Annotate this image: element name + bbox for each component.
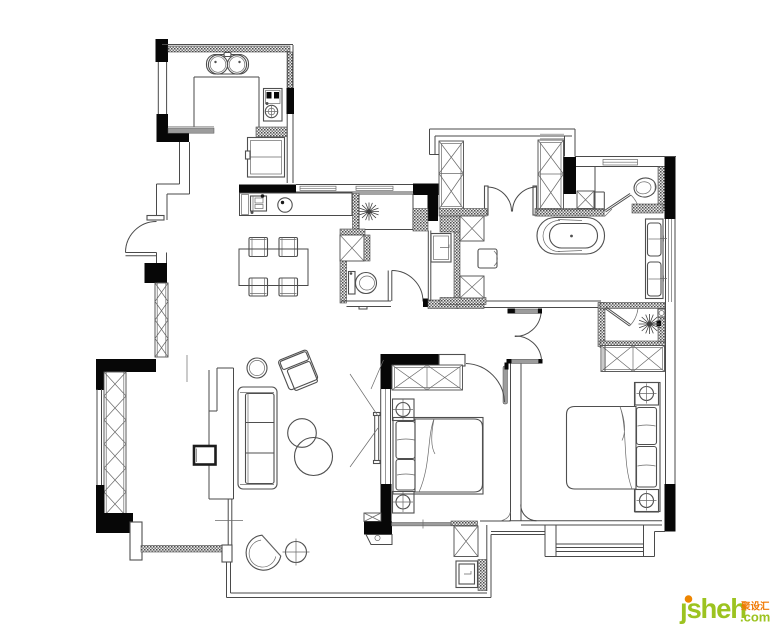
svg-text:.com: .com [740,610,770,624]
